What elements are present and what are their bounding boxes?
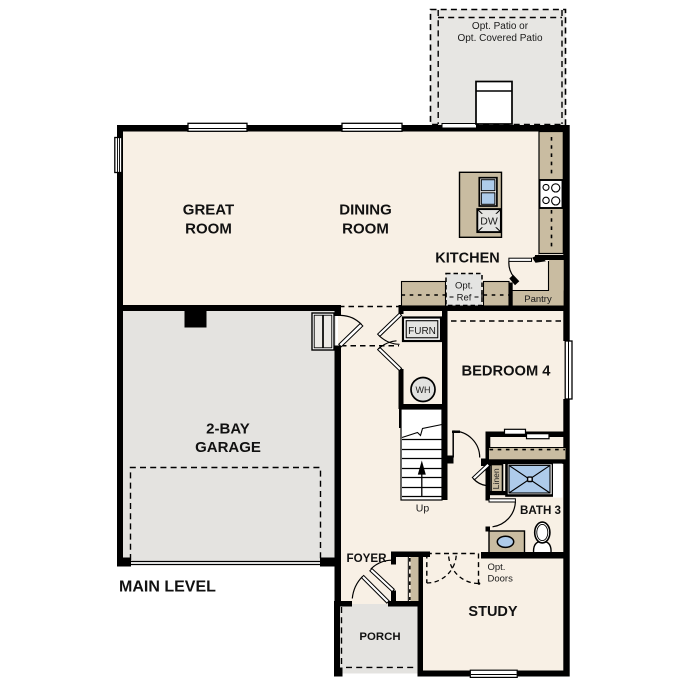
svg-text:Opt. Patio or: Opt. Patio or: [472, 21, 529, 32]
svg-text:Up: Up: [416, 503, 430, 515]
svg-text:FURN: FURN: [408, 326, 436, 337]
svg-text:PORCH: PORCH: [359, 631, 400, 643]
svg-text:Pantry: Pantry: [524, 294, 552, 305]
svg-text:ROOM: ROOM: [185, 221, 232, 238]
svg-text:Linen: Linen: [491, 468, 501, 489]
svg-text:STUDY: STUDY: [468, 604, 517, 620]
svg-text:ROOM: ROOM: [342, 221, 389, 238]
svg-text:GARAGE: GARAGE: [195, 439, 261, 456]
svg-text:Opt. Covered Patio: Opt. Covered Patio: [457, 33, 542, 44]
svg-text:DW: DW: [480, 216, 498, 228]
svg-text:BATH 3: BATH 3: [520, 504, 562, 517]
svg-text:WH: WH: [416, 385, 431, 395]
svg-text:Doors: Doors: [488, 574, 514, 585]
svg-text:2-BAY: 2-BAY: [206, 420, 250, 437]
svg-text:DINING: DINING: [339, 201, 392, 218]
svg-text:Ref: Ref: [457, 293, 472, 304]
svg-text:Opt.: Opt.: [488, 562, 506, 573]
svg-text:KITCHEN: KITCHEN: [435, 250, 499, 266]
svg-text:GREAT: GREAT: [183, 201, 234, 218]
svg-text:FOYER: FOYER: [347, 552, 388, 565]
svg-text:Opt.: Opt.: [455, 281, 473, 292]
svg-text:MAIN LEVEL: MAIN LEVEL: [119, 579, 216, 596]
svg-text:BEDROOM 4: BEDROOM 4: [462, 364, 552, 380]
